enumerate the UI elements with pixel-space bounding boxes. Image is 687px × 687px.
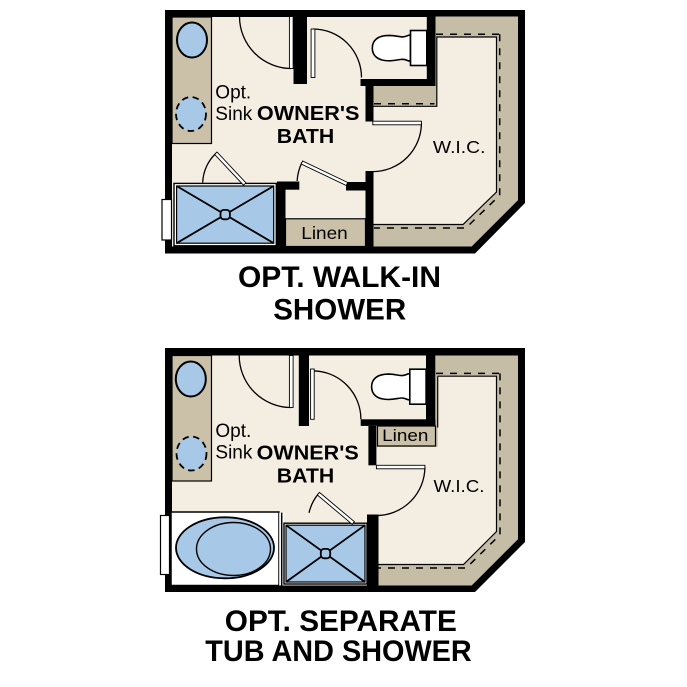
svg-text:Sink: Sink [215,442,252,463]
svg-text:OWNER'S: OWNER'S [257,441,359,464]
svg-text:Linen: Linen [382,426,428,445]
svg-text:Sink: Sink [215,104,252,125]
svg-text:OWNER'S: OWNER'S [257,102,360,125]
svg-text:Linen: Linen [301,223,348,243]
svg-text:W.I.C.: W.I.C. [433,137,486,157]
svg-text:SHOWER: SHOWER [273,294,406,327]
svg-text:Opt.: Opt. [215,421,251,442]
svg-text:BATH: BATH [277,465,335,488]
svg-text:OPT. WALK-IN: OPT. WALK-IN [238,261,441,294]
svg-text:Opt.: Opt. [215,83,251,104]
svg-text:OPT. SEPARATE: OPT. SEPARATE [225,605,457,638]
svg-text:W.I.C.: W.I.C. [434,476,485,496]
svg-text:TUB AND SHOWER: TUB AND SHOWER [205,635,472,668]
svg-text:BATH: BATH [277,125,335,148]
